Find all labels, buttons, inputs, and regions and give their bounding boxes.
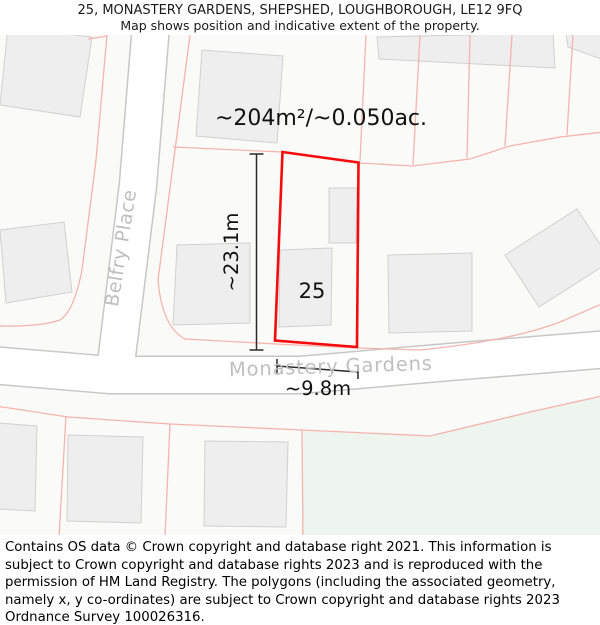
width-measure-label: ~9.8m xyxy=(285,377,351,400)
page-subtitle: Map shows position and indicative extent… xyxy=(0,18,600,33)
building xyxy=(388,253,472,333)
height-measure-label: ~23.1m xyxy=(220,213,243,292)
map-canvas: Belfry Place Monastery Gardens ~204m²/~0… xyxy=(0,35,600,535)
header: 25, MONASTERY GARDENS, SHEPSHED, LOUGHBO… xyxy=(0,0,600,35)
copyright-notice: Contains OS data © Crown copyright and d… xyxy=(0,535,600,625)
area-label: ~204m²/~0.050ac. xyxy=(215,106,427,131)
building xyxy=(204,441,288,527)
building xyxy=(67,435,143,523)
property-number-label: 25 xyxy=(299,279,326,303)
building xyxy=(0,222,72,303)
building xyxy=(0,423,37,511)
map-svg: Belfry Place Monastery Gardens ~204m²/~0… xyxy=(0,35,600,535)
building xyxy=(0,35,92,117)
page-title: 25, MONASTERY GARDENS, SHEPSHED, LOUGHBO… xyxy=(0,3,600,18)
property-map-page: 25, MONASTERY GARDENS, SHEPSHED, LOUGHBO… xyxy=(0,0,600,625)
building xyxy=(329,188,357,243)
